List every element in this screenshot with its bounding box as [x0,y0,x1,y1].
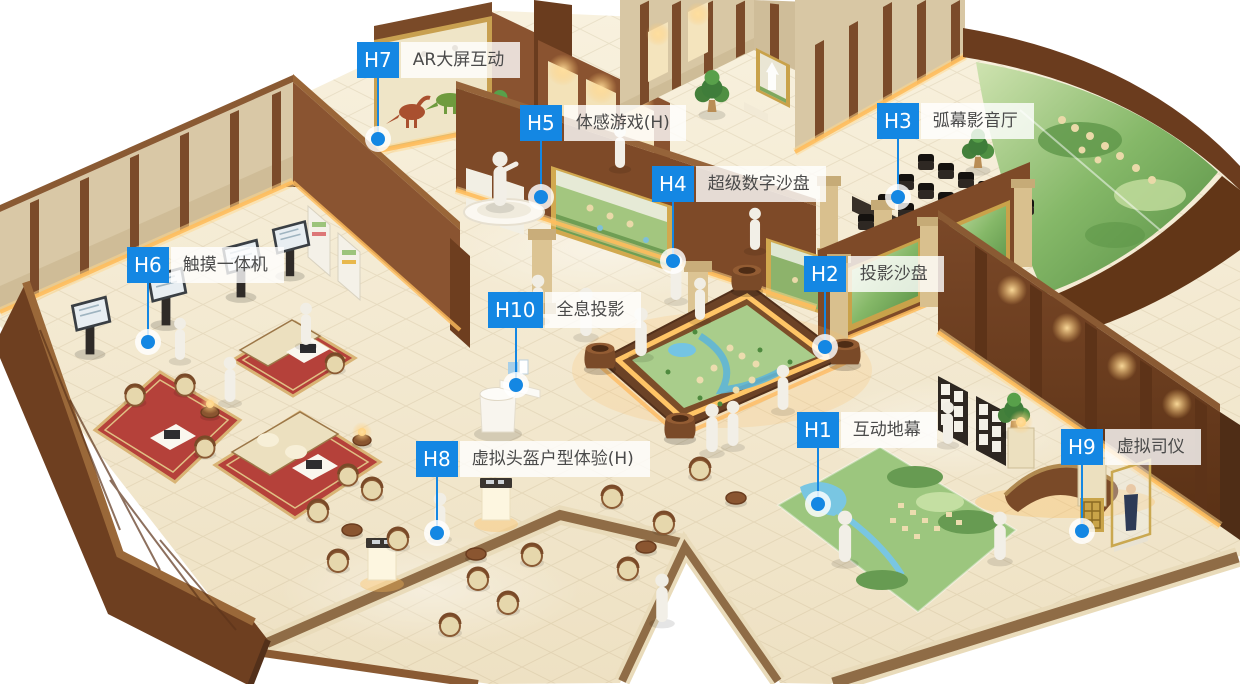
hotspot-dot-marker[interactable] [365,126,391,152]
hotspot-layer: H1 互动地幕 H2 投影沙盘 H3 弧幕影音厅 H4 超级数字沙盘 H5 体感… [0,0,1240,684]
hotspot-label: AR大屏互动 [401,42,520,78]
hotspot-dot-marker[interactable] [1069,518,1095,544]
hotspot: H1 互动地幕 [797,412,937,448]
hotspot-dot-marker[interactable] [528,184,554,210]
hotspot-badge[interactable]: H2 [804,256,846,292]
hotspot: H10 全息投影 [488,292,641,328]
hotspot-badge[interactable]: H4 [652,166,694,202]
hotspot-label: 虚拟头盔户型体验(H) [460,441,650,477]
hotspot-dot-marker[interactable] [424,520,450,546]
hotspot-badge[interactable]: H9 [1061,429,1103,465]
hotspot-label: 体感游戏(H) [564,105,686,141]
hotspot-dot-marker[interactable] [812,334,838,360]
hotspot: H5 体感游戏(H) [520,105,686,141]
hotspot: H2 投影沙盘 [804,256,944,292]
hotspot-badge[interactable]: H10 [488,292,543,328]
hotspot: H7 AR大屏互动 [357,42,520,78]
hotspot-label: 全息投影 [545,292,641,328]
hotspot: H9 虚拟司仪 [1061,429,1201,465]
hotspot-dot-marker[interactable] [135,329,161,355]
hotspot-badge[interactable]: H5 [520,105,562,141]
hotspot-badge[interactable]: H6 [127,247,169,283]
hotspot-badge[interactable]: H8 [416,441,458,477]
hotspot-label: 虚拟司仪 [1105,429,1201,465]
hotspot-label: 弧幕影音厅 [921,103,1034,139]
hotspot: H4 超级数字沙盘 [652,166,826,202]
hotspot: H6 触摸一体机 [127,247,284,283]
hotspot-label: 投影沙盘 [848,256,944,292]
hotspot: H3 弧幕影音厅 [877,103,1034,139]
hotspot-badge[interactable]: H1 [797,412,839,448]
hotspot-dot-marker[interactable] [885,184,911,210]
hotspot-dot-marker[interactable] [503,372,529,398]
hotspot-label: 互动地幕 [841,412,937,448]
hotspot-dot-marker[interactable] [660,248,686,274]
hotspot-badge[interactable]: H7 [357,42,399,78]
hotspot-badge[interactable]: H3 [877,103,919,139]
hotspot-label: 触摸一体机 [171,247,284,283]
hotspot-label: 超级数字沙盘 [696,166,826,202]
exhibition-hall-map: H1 互动地幕 H2 投影沙盘 H3 弧幕影音厅 H4 超级数字沙盘 H5 体感… [0,0,1240,684]
hotspot: H8 虚拟头盔户型体验(H) [416,441,650,477]
hotspot-dot-marker[interactable] [805,491,831,517]
